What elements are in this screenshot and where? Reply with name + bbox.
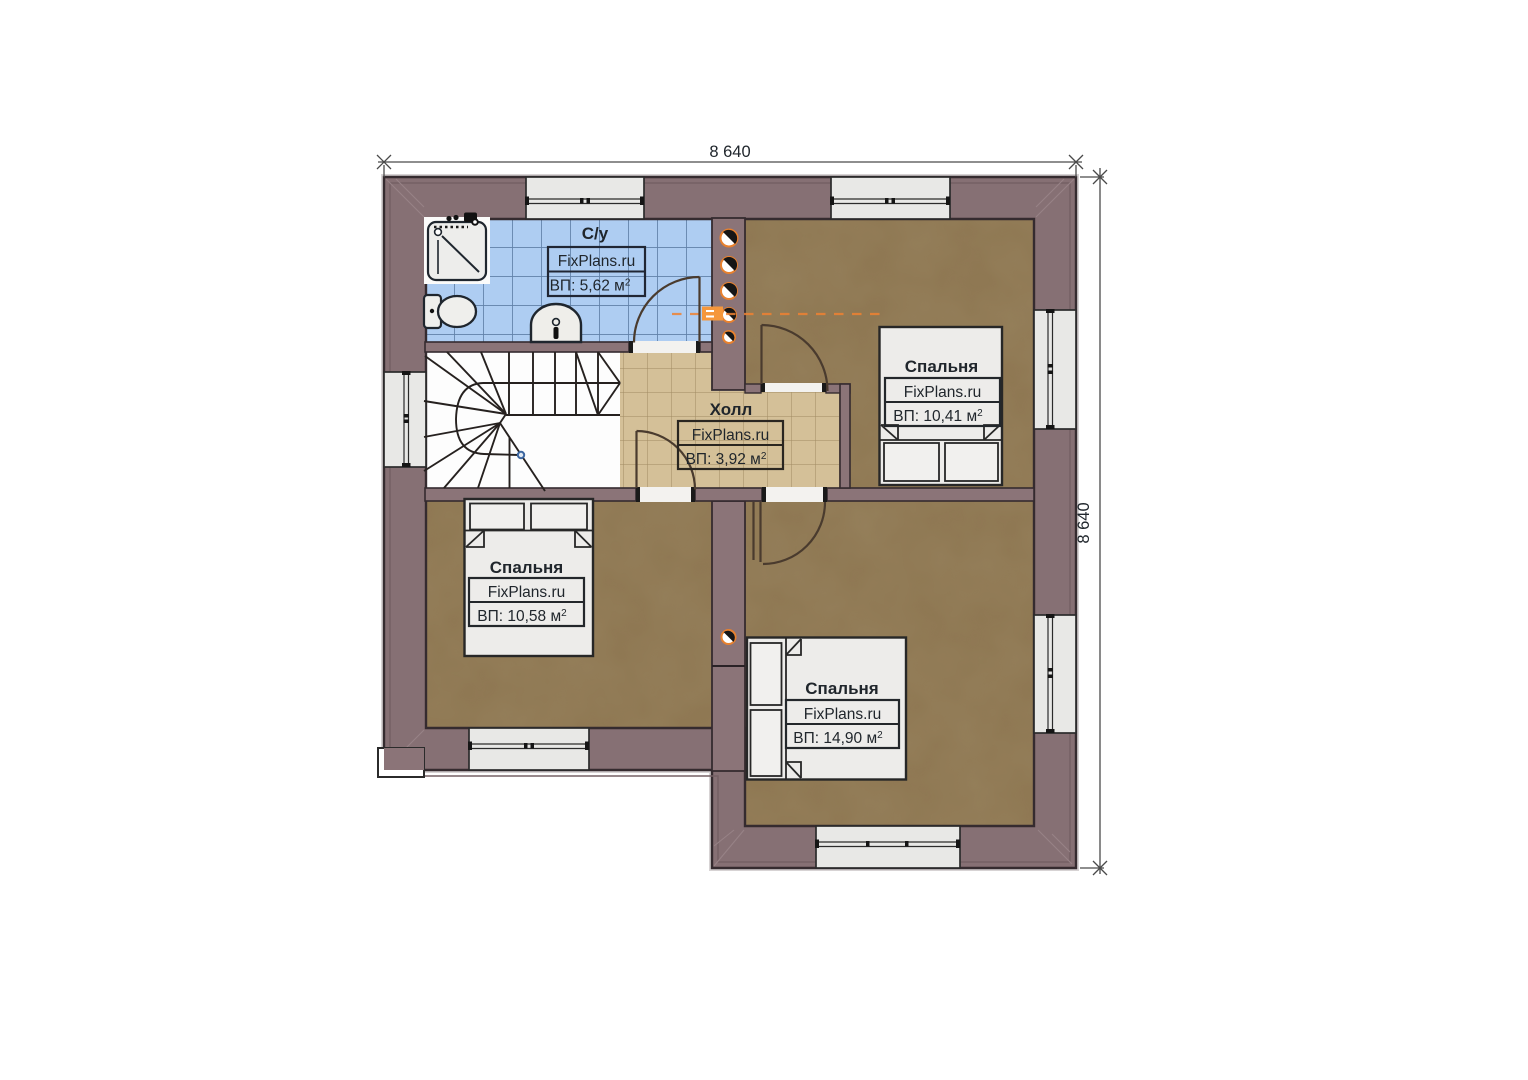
svg-text:Спальня: Спальня bbox=[490, 558, 563, 577]
svg-text:ВП: 14,90 м2: ВП: 14,90 м2 bbox=[793, 730, 883, 747]
svg-text:ВП: 10,41 м2: ВП: 10,41 м2 bbox=[893, 408, 983, 425]
svg-text:Холл: Холл bbox=[710, 400, 753, 419]
svg-text:Спальня: Спальня bbox=[905, 357, 978, 376]
svg-text:8 640: 8 640 bbox=[709, 143, 750, 161]
svg-text:С/у: С/у bbox=[582, 224, 609, 243]
svg-text:Спальня: Спальня bbox=[805, 679, 878, 698]
svg-text:FixPlans.ru: FixPlans.ru bbox=[904, 384, 982, 401]
svg-text:FixPlans.ru: FixPlans.ru bbox=[692, 427, 770, 444]
svg-text:ВП: 5,62 м2: ВП: 5,62 м2 bbox=[550, 278, 631, 295]
svg-text:8 640: 8 640 bbox=[1075, 502, 1093, 543]
svg-text:FixPlans.ru: FixPlans.ru bbox=[804, 706, 882, 723]
svg-text:FixPlans.ru: FixPlans.ru bbox=[488, 584, 566, 601]
svg-text:ВП: 3,92 м2: ВП: 3,92 м2 bbox=[686, 451, 767, 468]
svg-text:ВП: 10,58 м2: ВП: 10,58 м2 bbox=[477, 608, 567, 625]
svg-text:FixPlans.ru: FixPlans.ru bbox=[558, 253, 636, 270]
